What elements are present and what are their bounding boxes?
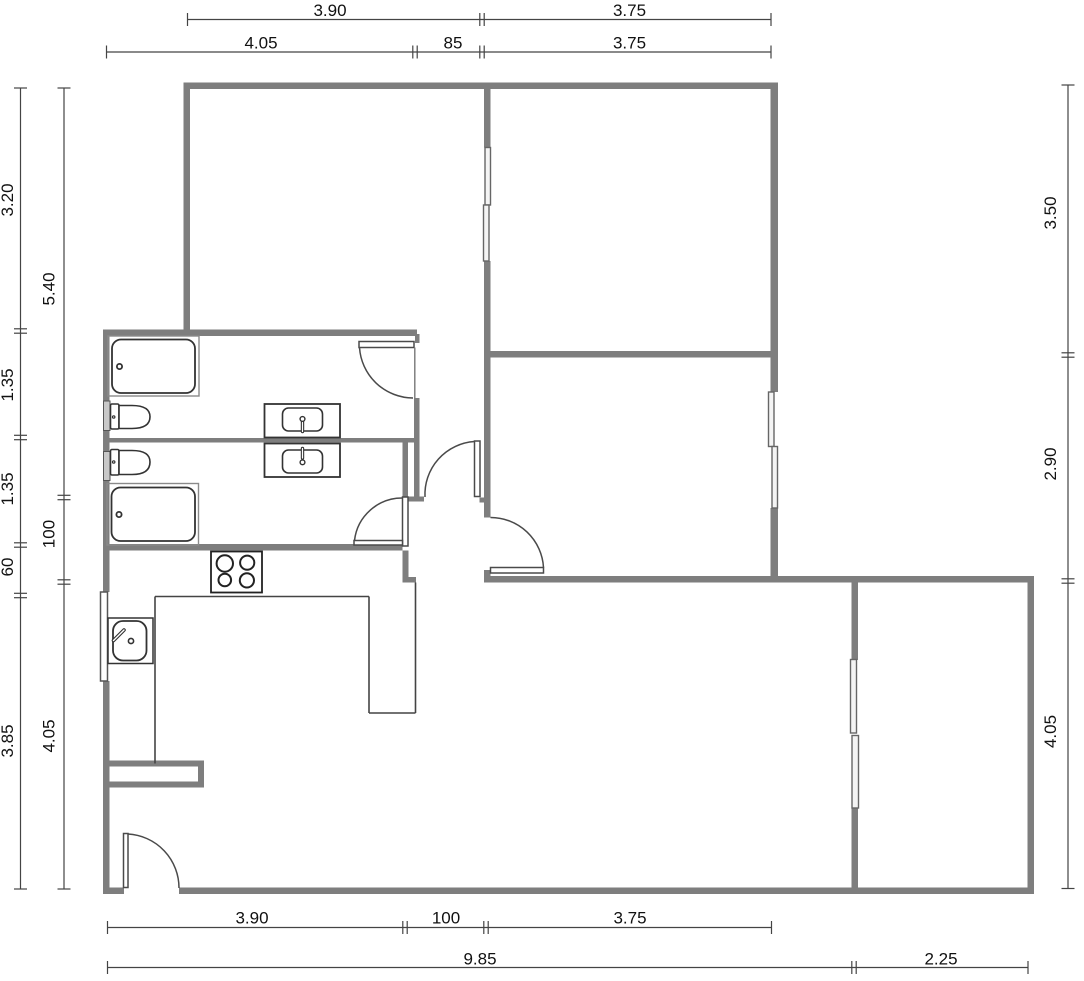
svg-text:100: 100 xyxy=(40,520,59,548)
svg-text:3.90: 3.90 xyxy=(235,909,268,928)
svg-text:5.40: 5.40 xyxy=(40,272,59,305)
svg-text:2.90: 2.90 xyxy=(1041,447,1060,480)
svg-text:3.75: 3.75 xyxy=(613,909,646,928)
svg-text:9.85: 9.85 xyxy=(463,950,496,969)
svg-text:3.85: 3.85 xyxy=(0,724,17,757)
svg-text:4.05: 4.05 xyxy=(1041,715,1060,748)
svg-text:3.75: 3.75 xyxy=(613,1,646,20)
svg-text:1.35: 1.35 xyxy=(0,368,17,401)
svg-text:3.50: 3.50 xyxy=(1041,196,1060,229)
svg-text:60: 60 xyxy=(0,558,17,577)
svg-text:85: 85 xyxy=(444,34,463,53)
svg-text:3.75: 3.75 xyxy=(613,34,646,53)
svg-text:3.20: 3.20 xyxy=(0,183,17,216)
svg-text:4.05: 4.05 xyxy=(40,719,59,752)
svg-text:1.35: 1.35 xyxy=(0,472,17,505)
svg-text:2.25: 2.25 xyxy=(924,950,957,969)
svg-text:4.05: 4.05 xyxy=(244,34,277,53)
svg-text:3.90: 3.90 xyxy=(313,1,346,20)
svg-text:100: 100 xyxy=(432,909,460,928)
